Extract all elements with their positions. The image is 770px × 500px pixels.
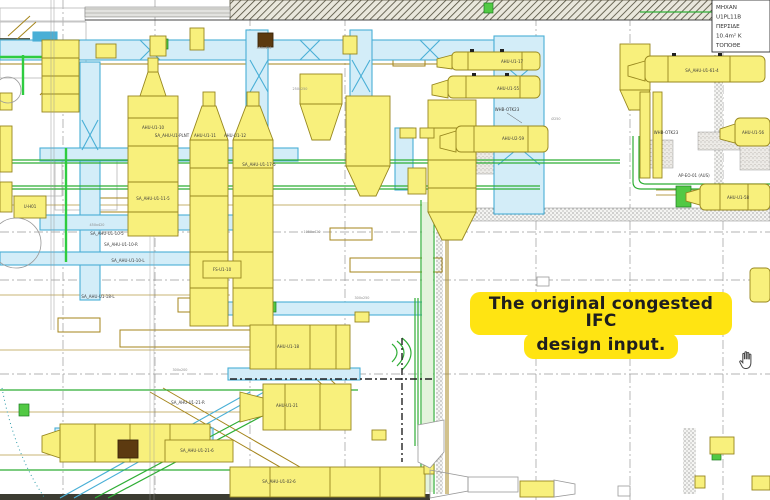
equipment-label: AP-EO-01 (AUS) (678, 173, 710, 178)
equipment-label: FS-U1-10 (213, 267, 232, 272)
equipment-label: AHU-U1-18 (277, 344, 300, 349)
equipment-label: SA_AHU-U1-10-5 (90, 231, 124, 236)
equipment-label: AHU-U1-56 (742, 130, 765, 135)
size-annotation: Ø250 (551, 116, 560, 121)
title-block-line: ΠΕΡΣΙΔΕ (716, 24, 740, 30)
equipment-label: AHU-U1-17 (501, 59, 524, 64)
equipment-label: SA_AHU-U1-11-5 (136, 196, 170, 201)
equipment-label: AHU-U1-10 (142, 125, 165, 130)
equipment-label: AHU-U1-11 (194, 133, 217, 138)
equipment-label: SA_AHU-U1-17-5 (242, 162, 276, 167)
cad-viewer-canvas[interactable]: AHU-U1-10SA_AHU-U1-PLNTAHU-U1-11AHU-U1-1… (0, 0, 770, 500)
hand-cursor-icon (736, 346, 760, 372)
title-block-line: 10.4m² Κ (716, 33, 742, 40)
equipment-label: SA_AHU-U1-10-L (111, 258, 145, 263)
title-block-line: ΤΟΠΟΘΕ (715, 43, 741, 49)
title-block: ΜΗΧΑΝU1PL11BΠΕΡΣΙΔΕ10.4m² ΚΤΟΠΟΘΕ (712, 0, 770, 52)
equipment-label: SA_AHU-U1-61-4 (685, 68, 719, 73)
equipment-label: WHB-OTK23 (495, 107, 520, 112)
annotation-note: The original congested IFC design input. (470, 292, 732, 359)
size-annotation: 300x200 (173, 368, 188, 372)
equipment-label: AHU-U1-55 (497, 86, 520, 91)
size-annotation: 250x250 (293, 87, 308, 91)
equipment-label: SA_AHU-U1-21-6 (180, 448, 214, 453)
equipment-label: SA_AHU-U1-21-R (171, 400, 205, 405)
size-annotation: 300x250 (355, 296, 370, 300)
equipment-label: SA_AHU-U1-PLNT (155, 133, 190, 138)
hand-cursor (736, 346, 760, 372)
equipment-label: AHU-U1-21 (276, 403, 299, 408)
equipment-label: SA_AHU-U1-18-L (81, 294, 115, 299)
title-block-line: ΜΗΧΑΝ (716, 5, 737, 11)
size-annotation: 450x420 (90, 223, 105, 227)
ifc-plan-drawing: AHU-U1-10SA_AHU-U1-PLNTAHU-U1-11AHU-U1-1… (0, 0, 770, 500)
annotation-line-1: The original congested IFC (470, 292, 732, 335)
title-block-line: U1PL11B (716, 15, 741, 21)
equipment-label: AHU-U1-58 (727, 195, 750, 200)
equipment-label: AHU-U1-12 (224, 133, 247, 138)
equipment-label: AHU-U2-59 (502, 136, 525, 141)
equipment-label: U-H01 (24, 204, 37, 209)
size-annotation: 350x420 (257, 46, 272, 50)
annotation-line-2: design input. (524, 333, 677, 359)
equipment-label: SA_AHU-U1-02-6 (262, 479, 296, 484)
equipment-label: WHB-OTK23 (654, 130, 679, 135)
equipment-label: SA_AHU-U1-10-R (104, 242, 138, 247)
size-annotation: 1050x420 (303, 230, 320, 234)
